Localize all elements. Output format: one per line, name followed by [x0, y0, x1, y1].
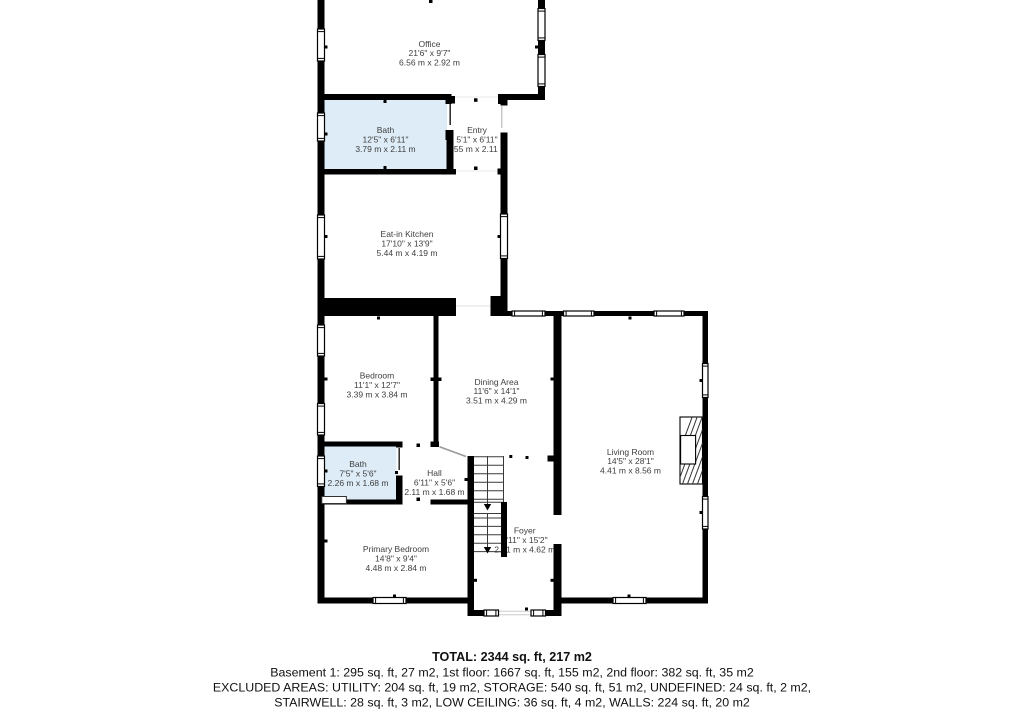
svg-text:STAIRWELL: 28 sq. ft, 3 m2, LO: STAIRWELL: 28 sq. ft, 3 m2, LOW CEILING:…	[274, 695, 750, 709]
svg-text:Basement 1: 295 sq. ft, 27 m2,: Basement 1: 295 sq. ft, 27 m2, 1st floor…	[270, 665, 754, 679]
svg-text:TOTAL: 2344 sq. ft, 217 m2: TOTAL: 2344 sq. ft, 217 m2	[432, 650, 592, 664]
svg-text:Dining Area11'6" x 14'1"3.51 m: Dining Area11'6" x 14'1"3.51 m x 4.29 m	[466, 377, 527, 406]
svg-text:EXCLUDED AREAS: UTILITY: 204 s: EXCLUDED AREAS: UTILITY: 204 sq. ft, 19 …	[213, 680, 811, 694]
svg-text:Eat-in Kitchen17'10" x 13'9"5.: Eat-in Kitchen17'10" x 13'9"5.44 m x 4.1…	[377, 229, 438, 258]
svg-text:Living Room14'5" x 28'1"4.41 m: Living Room14'5" x 28'1"4.41 m x 8.56 m	[600, 447, 661, 476]
